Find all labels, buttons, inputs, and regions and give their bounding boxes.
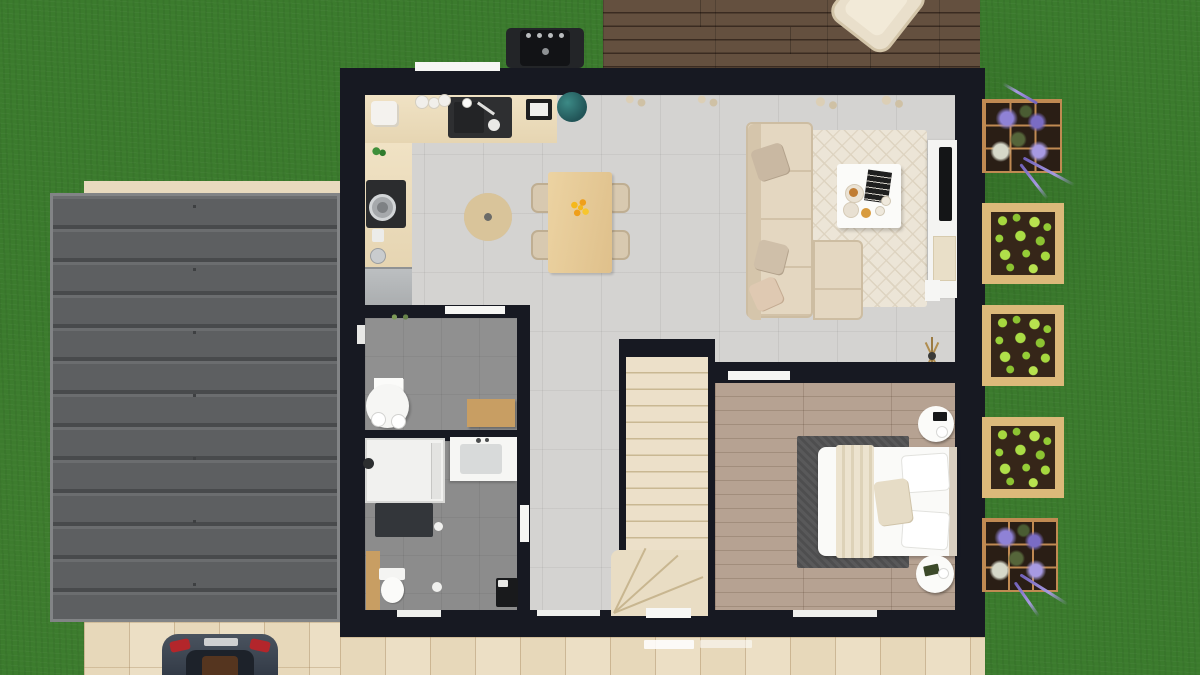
planter-lavender-1 [982, 99, 1062, 173]
tv-console [928, 140, 957, 298]
tv [939, 147, 952, 221]
stair-treads [626, 357, 708, 550]
flower-centerpiece [566, 196, 594, 222]
cutting-board [526, 99, 552, 120]
bathroom-door [520, 505, 529, 542]
sink-faucet [488, 119, 500, 131]
cup [938, 568, 949, 579]
pastry-bowl [861, 208, 871, 218]
bed-cushion [873, 478, 913, 526]
toilet-bowl [381, 577, 404, 603]
bath-mat [375, 503, 433, 537]
bedroom-window [793, 610, 877, 617]
doormat [700, 640, 752, 648]
alarm-clock [933, 412, 947, 421]
planter-lettuce-1 [982, 203, 1064, 284]
dining-chair [610, 183, 630, 213]
kitchen-scale [372, 229, 384, 242]
lamp-shade [928, 352, 936, 360]
car-hood-glint [204, 638, 238, 646]
vanity-basin [460, 444, 502, 474]
grill-knob [559, 33, 564, 38]
potted-plant [370, 144, 388, 160]
shower-glass [431, 443, 441, 499]
bathroom-accessory [432, 582, 442, 592]
office-door [445, 306, 505, 314]
grill-knob [548, 33, 553, 38]
car [162, 634, 278, 675]
pastry [849, 188, 858, 197]
console-drawer [933, 236, 956, 281]
throw-blanket [836, 445, 874, 558]
cup [936, 426, 948, 438]
car-interior [202, 656, 238, 675]
cup [875, 206, 885, 216]
toilet-brush [434, 522, 443, 531]
office-chair-arm [391, 414, 406, 429]
grill-knob [537, 33, 542, 38]
entry-door [646, 608, 691, 618]
grill-handle [542, 48, 549, 55]
deck [603, 0, 980, 68]
shower-head [363, 458, 374, 469]
kettle [370, 248, 386, 264]
shower [365, 438, 445, 503]
globe-decor [557, 92, 587, 122]
ceiling-light [878, 93, 906, 111]
coffee-table [837, 164, 901, 228]
nightstand-top [918, 406, 954, 442]
office-chair-arm [371, 412, 386, 427]
coffee-machine [371, 101, 397, 125]
laundry-basket [496, 578, 518, 607]
vanity-sink [450, 437, 517, 481]
lounge-chair-cushion [842, 0, 910, 38]
kitchen-window [415, 62, 500, 71]
toilet-cabinet [366, 551, 380, 610]
car-headlight-left [169, 638, 191, 653]
entry-doormat [644, 640, 694, 649]
floor-plan-scene [0, 0, 1200, 675]
vanity-tap [485, 438, 489, 442]
kitchen-jar [415, 95, 429, 109]
nightstand-bottom [916, 555, 954, 593]
dining-table [548, 172, 612, 273]
cup [881, 196, 891, 206]
sofa-chaise [813, 240, 863, 320]
ceiling-light [812, 95, 840, 112]
planter-lettuce-2 [982, 305, 1064, 386]
kitchen-jar [438, 94, 451, 107]
kitchen-sink [448, 97, 512, 138]
ceiling-light [694, 93, 720, 109]
jute-rug [464, 193, 512, 241]
deck-plank-joint [790, 27, 791, 54]
garage-roof-screws [193, 205, 196, 610]
plate [843, 202, 859, 218]
grill-knob [526, 33, 531, 38]
bed [818, 447, 957, 556]
cutting-board-paper [530, 103, 548, 116]
laundry-cloth [498, 580, 508, 587]
bedroom-door [728, 371, 790, 380]
hallway-window [537, 610, 600, 616]
planter-lavender-2 [982, 518, 1058, 592]
ceiling-light [622, 93, 648, 109]
office-window [357, 325, 365, 344]
console-mat [925, 280, 940, 301]
cooktop [366, 180, 406, 228]
cooking-pot-lid [377, 202, 388, 213]
bbq-grill [506, 28, 584, 68]
office-shelf [467, 399, 515, 427]
fridge [365, 267, 412, 308]
planter-lettuce-3 [982, 417, 1064, 498]
vanity-faucet [476, 438, 481, 443]
bathroom-window [397, 610, 441, 617]
dining-chair [610, 230, 630, 260]
wall-greenery-decor [386, 313, 414, 321]
car-headlight-right [249, 638, 271, 653]
deck-plank-joint [700, 0, 701, 27]
bed-headboard [949, 447, 957, 556]
pendant-light [462, 98, 472, 108]
